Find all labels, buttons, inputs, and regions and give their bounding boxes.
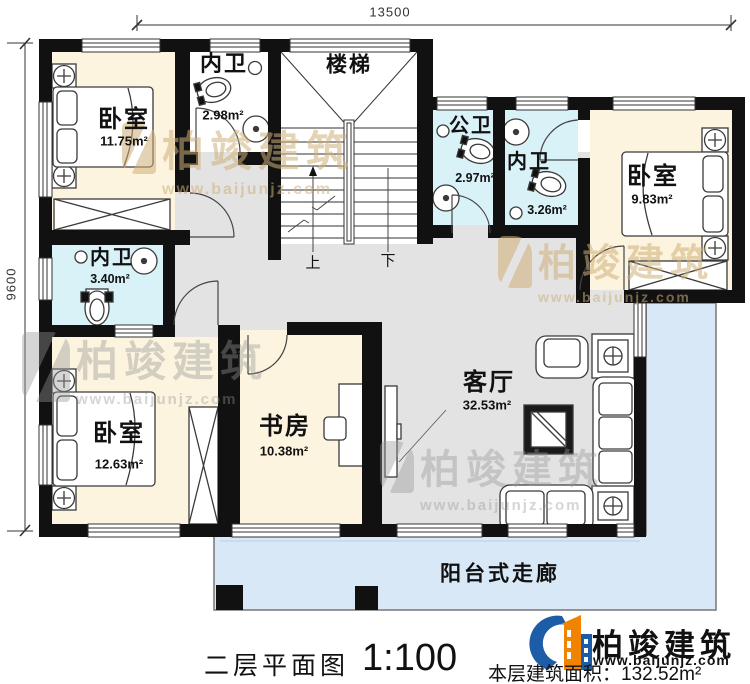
ensuite-top-right-label: 内卫: [507, 152, 551, 172]
public-bath-area: 2.97m²: [455, 172, 495, 185]
door-stop: [249, 62, 262, 75]
door-stop: [75, 251, 87, 263]
sink: [243, 116, 269, 142]
lined-opening: [115, 325, 153, 337]
window: [437, 97, 487, 110]
dimension-top: 13500: [369, 6, 410, 19]
sofa: [593, 377, 638, 488]
stairs-up-label: 上: [305, 256, 320, 271]
public-bath-label: 公卫: [449, 116, 493, 136]
bedroom-top-right-label: 卧室: [627, 165, 679, 189]
living-room-label: 客厅: [463, 371, 515, 395]
bedroom-top-left-area: 11.75m²: [100, 135, 148, 148]
ensuite-top-left-label: 内卫: [200, 53, 248, 75]
wardrobe: [629, 261, 727, 290]
side-table: [592, 334, 634, 378]
ensuite-top-right-area: 3.26m²: [527, 204, 567, 217]
bedroom-top-left-label: 卧室: [98, 108, 150, 132]
balcony-post: [355, 586, 378, 610]
side-table: [592, 486, 634, 526]
sliding-door: [508, 524, 567, 537]
wardrobe: [189, 407, 218, 524]
stairs-label: 楼梯: [326, 55, 372, 76]
balcony-post: [216, 585, 243, 610]
floor-plan-page: 柏竣建筑 www.baijunjz.com 柏竣建筑 www.baijunjz.…: [0, 0, 750, 684]
window: [290, 39, 410, 52]
dimension-left: 9600: [5, 268, 18, 301]
sliding-door: [232, 524, 340, 537]
window: [39, 258, 52, 300]
plan-title: 二层平面图: [204, 646, 349, 682]
bedroom-bottom-left-area: 12.63m²: [95, 458, 143, 471]
window: [39, 102, 52, 197]
window: [634, 303, 646, 357]
window: [82, 39, 160, 52]
sink: [503, 119, 529, 145]
wardrobe: [54, 199, 170, 230]
balcony-label: 阳台式走廊: [440, 564, 560, 585]
stairs-down-label: 下: [380, 254, 395, 269]
study-area: 10.38m²: [260, 445, 308, 458]
window: [88, 524, 180, 537]
living-room-area: 32.53m²: [463, 399, 511, 412]
bedroom-bottom-left-label: 卧室: [93, 422, 145, 446]
ensuite-mid-left-area: 3.40m²: [90, 273, 130, 286]
ensuite-mid-left-label: 内卫: [90, 248, 134, 268]
sink: [433, 185, 459, 211]
sliding-door: [397, 524, 482, 537]
window: [613, 97, 695, 110]
floor-plan-drawing: [0, 0, 750, 684]
study-label: 书房: [259, 415, 311, 439]
bedroom-top-right-area: 9.83m²: [631, 193, 672, 206]
door-stop: [437, 125, 449, 137]
coffee-table: [524, 405, 573, 454]
plan-scale: 1:100: [362, 637, 457, 680]
sliding-door: [617, 524, 634, 537]
window: [39, 425, 52, 485]
window: [516, 97, 568, 110]
armchair: [536, 336, 588, 378]
brand-website: www.baijunjz.com: [593, 652, 730, 668]
door-stop: [510, 207, 522, 219]
sink: [131, 248, 157, 274]
ensuite-top-left-area: 2.98m²: [202, 109, 243, 122]
